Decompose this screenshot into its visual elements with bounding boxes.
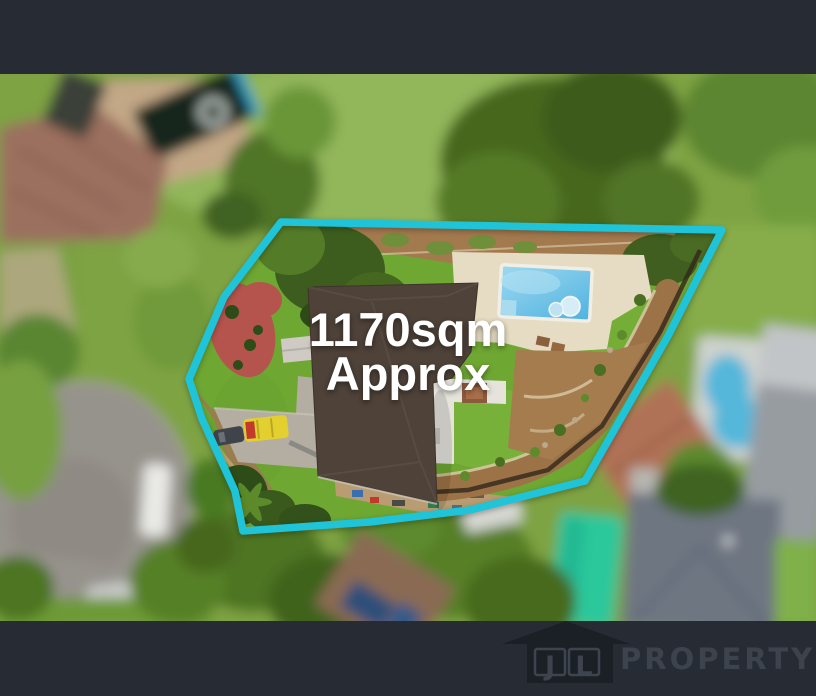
- tree-canopy: [175, 517, 235, 573]
- brand-name: PROPERTY: [620, 642, 815, 676]
- top-letterbox-bar: [0, 0, 816, 74]
- photo-canvas: 1170sqm Approx J L PROPERTY: [0, 0, 816, 696]
- tree-canopy: [264, 86, 336, 158]
- roof-vent: [723, 536, 733, 546]
- parked-van: [140, 463, 172, 537]
- yellow-van: [243, 415, 289, 442]
- grass-strip: [775, 540, 816, 625]
- tree-canopy: [124, 228, 196, 288]
- tree-canopy: [542, 63, 682, 173]
- brand-initial-j: J: [543, 651, 555, 682]
- brand-initial-l: L: [575, 651, 592, 682]
- tree-canopy: [202, 191, 262, 239]
- tree-canopy: [655, 464, 745, 516]
- aerial-property-photo: 1170sqm Approx J L PROPERTY: [0, 0, 816, 696]
- swimming-pool: [499, 265, 593, 322]
- area-approx-text: Approx: [326, 347, 491, 400]
